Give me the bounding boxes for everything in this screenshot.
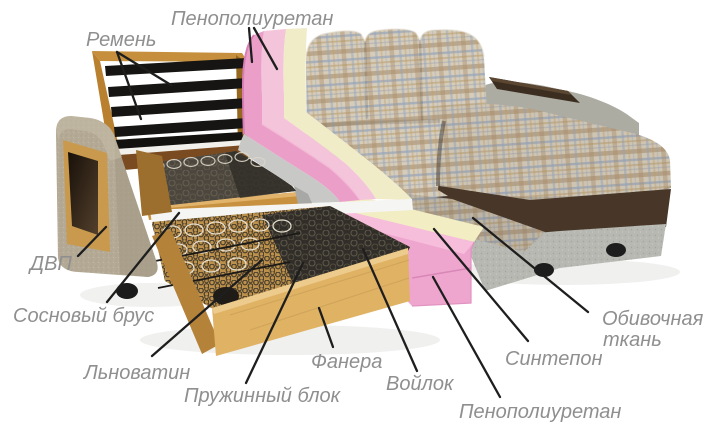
svg-text:ДВП: ДВП bbox=[28, 253, 72, 275]
svg-text:Фанера: Фанера bbox=[311, 351, 382, 373]
svg-text:ткань: ткань bbox=[603, 329, 662, 351]
svg-text:Льноватин: Льноватин bbox=[82, 362, 190, 384]
svg-text:Ремень: Ремень bbox=[86, 29, 156, 51]
svg-text:Пружинный блок: Пружинный блок bbox=[184, 385, 342, 407]
svg-text:Пенополиуретан: Пенополиуретан bbox=[459, 401, 621, 423]
svg-text:Синтепон: Синтепон bbox=[505, 348, 603, 370]
svg-text:Пенополиуретан: Пенополиуретан bbox=[171, 8, 333, 30]
svg-text:Войлок: Войлок bbox=[386, 373, 455, 395]
svg-text:Обивочная: Обивочная bbox=[602, 308, 704, 330]
svg-text:Сосновый брус: Сосновый брус bbox=[13, 305, 154, 327]
